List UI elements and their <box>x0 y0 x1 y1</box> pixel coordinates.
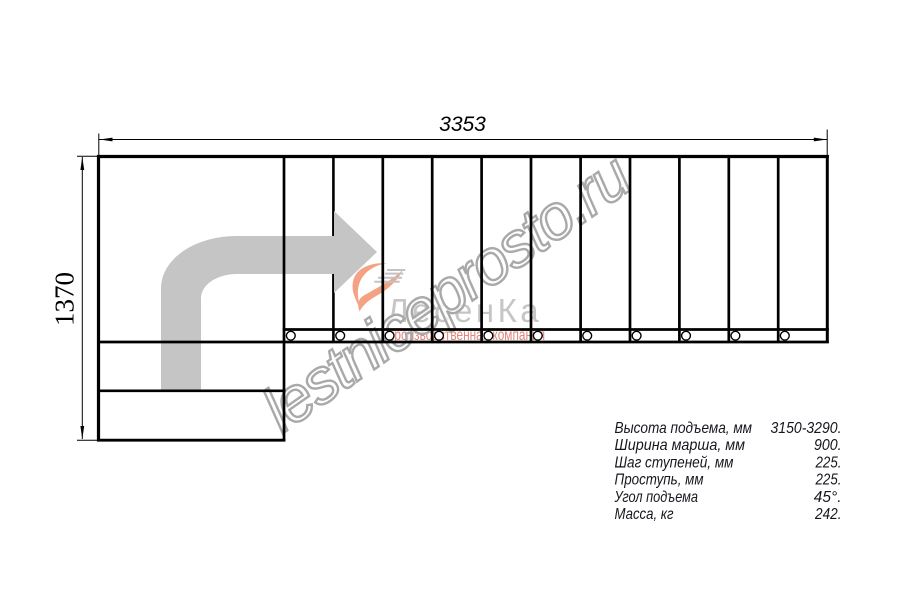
svg-text:Высота подъема, мм: Высота подъема, мм <box>615 420 753 437</box>
svg-text:Ширина марша, мм: Ширина марша, мм <box>615 437 746 454</box>
svg-text:225.: 225. <box>815 472 842 489</box>
svg-text:3353: 3353 <box>439 113 486 136</box>
svg-text:3150-3290.: 3150-3290. <box>771 420 842 437</box>
svg-text:Угол подъема: Угол подъема <box>614 489 698 506</box>
svg-text:Проступь, мм: Проступь, мм <box>615 472 704 489</box>
svg-text:900.: 900. <box>814 437 842 454</box>
svg-text:Масса, кг: Масса, кг <box>615 506 674 523</box>
svg-text:225.: 225. <box>815 454 842 471</box>
svg-text:45°.: 45°. <box>814 489 842 506</box>
svg-text:Шаг ступеней, мм: Шаг ступеней, мм <box>615 454 734 471</box>
svg-text:242.: 242. <box>814 506 841 523</box>
svg-text:1370: 1370 <box>50 272 80 326</box>
